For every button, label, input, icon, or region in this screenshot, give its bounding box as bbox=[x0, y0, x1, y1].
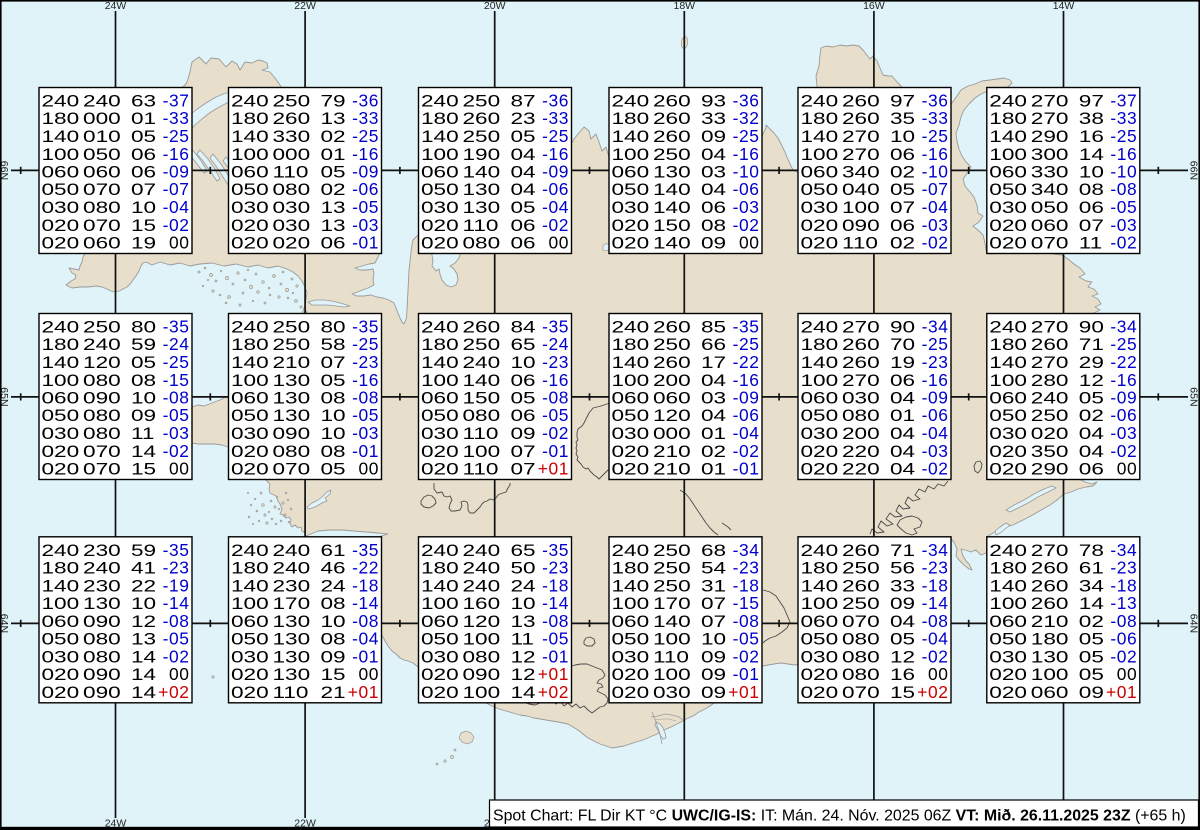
svg-text:-36-32-25-16-10-06-03-0200: -36-32-25-16-10-06-03-0200 bbox=[733, 91, 760, 253]
svg-text:-34-25-22-16-09-06-03-0200: -34-25-22-16-09-06-03-0200 bbox=[1110, 317, 1137, 479]
svg-text:270260270280240250020350290: 270260270280240250020350290 bbox=[1031, 318, 1069, 478]
svg-text:-35-25-23-16-08-05-03-0100: -35-25-23-16-08-05-03-0100 bbox=[352, 317, 379, 479]
svg-text:20W: 20W bbox=[484, 0, 506, 12]
svg-text:250260330000110080030030020: 250260330000110080030030020 bbox=[272, 92, 310, 252]
svg-text:-35-24-23-16-08-05-02-01+01: -35-24-23-16-08-05-02-01+01 bbox=[538, 317, 569, 479]
svg-text:240180140100060050030020020: 240180140100060050030020020 bbox=[989, 92, 1027, 252]
svg-text:240180140100060050030020020: 240180140100060050030020020 bbox=[41, 318, 79, 478]
svg-text:240180140100060050030020020: 240180140100060050030020020 bbox=[801, 92, 839, 252]
svg-text:240240230170130130130130110: 240240230170130130130130110 bbox=[272, 542, 310, 702]
svg-text:630105060607101519: 630105060607101519 bbox=[131, 92, 156, 252]
svg-text:260250260200060120000210210: 260250260200060120000210210 bbox=[653, 318, 691, 478]
svg-text:Spot Chart: FL Dir KT °C UWC/I: Spot Chart: FL Dir KT °C UWC/IG-IS: IT: … bbox=[493, 808, 1186, 825]
svg-text:260260270270340040100090110: 260260270270340040100090110 bbox=[842, 92, 880, 252]
svg-text:240180140100060050030020020: 240180140100060050030020020 bbox=[989, 542, 1027, 702]
svg-text:240180140100060050030020020: 240180140100060050030020020 bbox=[612, 92, 650, 252]
svg-text:14W: 14W bbox=[1053, 0, 1075, 12]
svg-text:64N: 64N bbox=[1188, 614, 1200, 633]
svg-text:240240240160120100080090100: 240240240160120100080090100 bbox=[462, 542, 500, 702]
svg-text:250240120080090080080070070: 250240120080090080080070070 bbox=[83, 318, 121, 478]
svg-text:240180140100060050030020020: 240180140100060050030020020 bbox=[612, 318, 650, 478]
svg-text:260260260250130140140150140: 260260260250130140140150140 bbox=[653, 92, 691, 252]
svg-text:250260250190140130130110080: 250260250190140130130110080 bbox=[462, 92, 500, 252]
svg-text:240180140100060050030020020: 240180140100060050030020020 bbox=[801, 318, 839, 478]
svg-text:250250210130130130090080070: 250250210130130130090080070 bbox=[272, 318, 310, 478]
svg-text:270270290300330340050060070: 270270290300330340050060070 bbox=[1031, 92, 1069, 252]
svg-text:655024101311121214: 655024101311121214 bbox=[511, 542, 536, 702]
svg-text:16W: 16W bbox=[863, 0, 885, 12]
svg-text:-34-23-18-15-08-05-02-01+01: -34-23-18-15-08-05-02-01+01 bbox=[728, 540, 759, 702]
svg-text:240180140100060050030020020: 240180140100060050030020020 bbox=[421, 92, 459, 252]
svg-text:933309040304060809: 933309040304060809 bbox=[701, 92, 726, 252]
svg-text:260250260250070080080080070: 260250260250070080080080070 bbox=[842, 542, 880, 702]
svg-text:66N: 66N bbox=[1188, 161, 1200, 180]
svg-text:-36-33-25-16-10-07-04-03-02: -36-33-25-16-10-07-04-03-02 bbox=[922, 91, 949, 253]
svg-text:-36-33-25-16-09-06-05-03-01: -36-33-25-16-09-06-05-03-01 bbox=[352, 91, 379, 253]
svg-text:250250250170140100110100030: 250250250170140100110100030 bbox=[653, 542, 691, 702]
svg-text:24W: 24W bbox=[105, 0, 127, 12]
svg-text:685431070710090909: 685431070710090909 bbox=[701, 542, 726, 702]
svg-text:846510060506090707: 846510060506090707 bbox=[511, 318, 536, 478]
svg-text:805807050810100805: 805807050810100805 bbox=[320, 318, 345, 478]
svg-text:240180140100060050030020020: 240180140100060050030020020 bbox=[989, 318, 1027, 478]
svg-text:-35-24-25-15-08-05-03-0200: -35-24-25-15-08-05-03-0200 bbox=[163, 317, 190, 479]
svg-text:973816141008060711: 973816141008060711 bbox=[1079, 92, 1104, 252]
svg-text:240180140100060050030020020: 240180140100060050030020020 bbox=[801, 542, 839, 702]
svg-text:872305040404050606: 872305040404050606 bbox=[511, 92, 536, 252]
svg-text:240180140100060050030020020: 240180140100060050030020020 bbox=[231, 318, 269, 478]
svg-text:-34-25-23-16-09-06-04-03-02: -34-25-23-16-09-06-04-03-02 bbox=[922, 317, 949, 479]
svg-text:-35-25-22-16-09-06-04-02-01: -35-25-22-16-09-06-04-02-01 bbox=[733, 317, 760, 479]
svg-text:240180140100060050030020020: 240180140100060050030020020 bbox=[41, 542, 79, 702]
svg-text:18W: 18W bbox=[674, 0, 696, 12]
svg-text:240180140100060050030020020: 240180140100060050030020020 bbox=[421, 542, 459, 702]
svg-text:907129120502040406: 907129120502040406 bbox=[1079, 318, 1104, 478]
svg-text:260250240140150080110100110: 260250240140150080110100110 bbox=[462, 318, 500, 478]
svg-text:240180140100060050030020020: 240180140100060050030020020 bbox=[231, 542, 269, 702]
svg-text:715633090405121615: 715633090405121615 bbox=[890, 542, 915, 702]
svg-text:805905081009111415: 805905081009111415 bbox=[131, 318, 156, 478]
svg-text:-35-23-18-14-08-05-01+01+02: -35-23-18-14-08-05-01+01+02 bbox=[538, 540, 569, 702]
svg-text:240180140100060050030020020: 240180140100060050030020020 bbox=[41, 92, 79, 252]
svg-text:230240230130090080080090090: 230240230130090080080090090 bbox=[83, 542, 121, 702]
svg-text:240180140100060050030020020: 240180140100060050030020020 bbox=[231, 92, 269, 252]
svg-text:-37-33-25-16-10-08-05-03-02: -37-33-25-16-10-08-05-03-02 bbox=[1110, 91, 1137, 253]
svg-text:270260260260210180130100060: 270260260260210180130100060 bbox=[1031, 542, 1069, 702]
svg-text:791302010502131306: 791302010502131306 bbox=[320, 92, 345, 252]
svg-text:786134140205050509: 786134140205050509 bbox=[1079, 542, 1104, 702]
svg-text:973510060205070602: 973510060205070602 bbox=[890, 92, 915, 252]
svg-text:614624081008091521: 614624081008091521 bbox=[320, 542, 345, 702]
svg-text:240180140100060050030020020: 240180140100060050030020020 bbox=[421, 318, 459, 478]
svg-text:22W: 22W bbox=[294, 0, 316, 12]
svg-text:-37-33-25-16-09-07-04-0200: -37-33-25-16-09-07-04-0200 bbox=[163, 91, 190, 253]
svg-text:65N: 65N bbox=[1188, 387, 1200, 406]
svg-text:240180140100060050030020020: 240180140100060050030020020 bbox=[612, 542, 650, 702]
svg-text:-36-33-25-16-09-06-04-0200: -36-33-25-16-09-06-04-0200 bbox=[542, 91, 569, 253]
svg-text:907019060401040404: 907019060401040404 bbox=[890, 318, 915, 478]
svg-text:594122101213141414: 594122101213141414 bbox=[131, 542, 156, 702]
svg-text:856617040304010201: 856617040304010201 bbox=[701, 318, 726, 478]
svg-text:240000010050060070080070060: 240000010050060070080070060 bbox=[83, 92, 121, 252]
svg-text:270260260270030080200220220: 270260260270030080200220220 bbox=[842, 318, 880, 478]
